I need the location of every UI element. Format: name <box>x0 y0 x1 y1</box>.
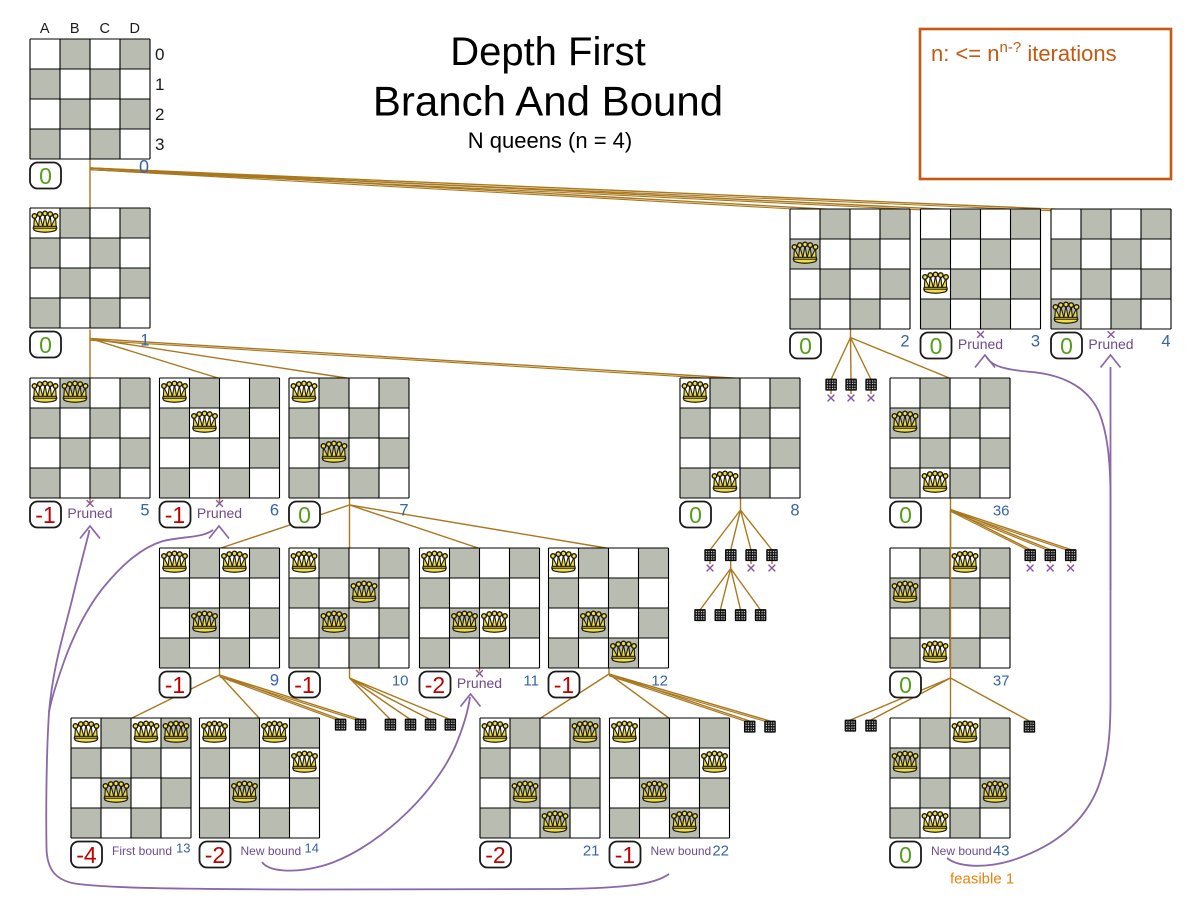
svg-text:21: 21 <box>583 843 600 860</box>
svg-text:2: 2 <box>900 333 909 351</box>
svg-text:7: 7 <box>399 502 408 520</box>
svg-text:-1: -1 <box>294 672 314 698</box>
svg-text:B: B <box>70 21 80 37</box>
svg-text:9: 9 <box>270 672 279 690</box>
svg-text:New bound: New bound <box>651 844 712 858</box>
svg-text:-1: -1 <box>554 672 574 698</box>
svg-text:D: D <box>130 21 141 37</box>
svg-text:0: 0 <box>899 502 912 528</box>
svg-text:3: 3 <box>155 135 164 154</box>
svg-text:5: 5 <box>140 502 149 520</box>
svg-text:0: 0 <box>930 333 943 359</box>
svg-text:-4: -4 <box>76 842 97 868</box>
svg-text:0: 0 <box>39 163 52 189</box>
svg-text:Pruned: Pruned <box>197 505 242 521</box>
svg-text:8: 8 <box>790 502 799 520</box>
svg-text:1: 1 <box>155 75 164 94</box>
svg-text:First bound: First bound <box>112 844 172 858</box>
svg-text:A: A <box>40 21 50 37</box>
svg-text:Depth First: Depth First <box>450 30 646 74</box>
svg-text:Pruned: Pruned <box>958 336 1003 352</box>
svg-text:-1: -1 <box>165 502 185 528</box>
svg-text:0: 0 <box>799 333 812 359</box>
svg-text:-1: -1 <box>35 502 55 528</box>
svg-text:4: 4 <box>1161 333 1170 351</box>
svg-text:10: 10 <box>392 673 409 690</box>
svg-text:0: 0 <box>899 672 912 698</box>
svg-text:n: <= nn-? iterations: n: <= nn-? iterations <box>931 39 1117 66</box>
svg-text:2: 2 <box>155 105 164 124</box>
svg-text:3: 3 <box>1031 333 1040 351</box>
svg-text:Pruned: Pruned <box>67 505 112 521</box>
svg-text:Pruned: Pruned <box>1088 336 1133 352</box>
svg-text:11: 11 <box>523 673 539 690</box>
svg-text:0: 0 <box>139 157 149 177</box>
svg-text:12: 12 <box>651 673 668 690</box>
svg-text:13: 13 <box>176 841 190 856</box>
svg-text:-2: -2 <box>485 842 505 868</box>
svg-text:36: 36 <box>993 503 1010 520</box>
svg-text:1: 1 <box>140 332 149 350</box>
svg-text:New bound: New bound <box>931 844 992 858</box>
svg-text:22: 22 <box>712 843 729 860</box>
svg-text:43: 43 <box>993 843 1010 860</box>
svg-text:New bound: New bound <box>241 844 302 858</box>
svg-text:0: 0 <box>298 502 311 528</box>
svg-text:C: C <box>100 21 111 37</box>
svg-text:feasible 1: feasible 1 <box>950 871 1014 888</box>
svg-text:0: 0 <box>155 45 164 64</box>
svg-text:14: 14 <box>305 841 319 856</box>
svg-text:-1: -1 <box>615 842 635 868</box>
svg-text:Branch And Bound: Branch And Bound <box>373 78 723 125</box>
svg-text:0: 0 <box>899 842 912 868</box>
svg-text:6: 6 <box>270 502 279 520</box>
svg-text:N queens (n = 4): N queens (n = 4) <box>468 128 632 153</box>
svg-text:-1: -1 <box>165 672 185 698</box>
svg-text:37: 37 <box>993 673 1010 690</box>
svg-text:-2: -2 <box>205 842 225 868</box>
svg-text:0: 0 <box>1060 333 1073 359</box>
svg-text:0: 0 <box>39 332 52 358</box>
svg-text:0: 0 <box>689 502 702 528</box>
svg-text:Pruned: Pruned <box>457 675 502 691</box>
svg-text:-2: -2 <box>425 672 445 698</box>
